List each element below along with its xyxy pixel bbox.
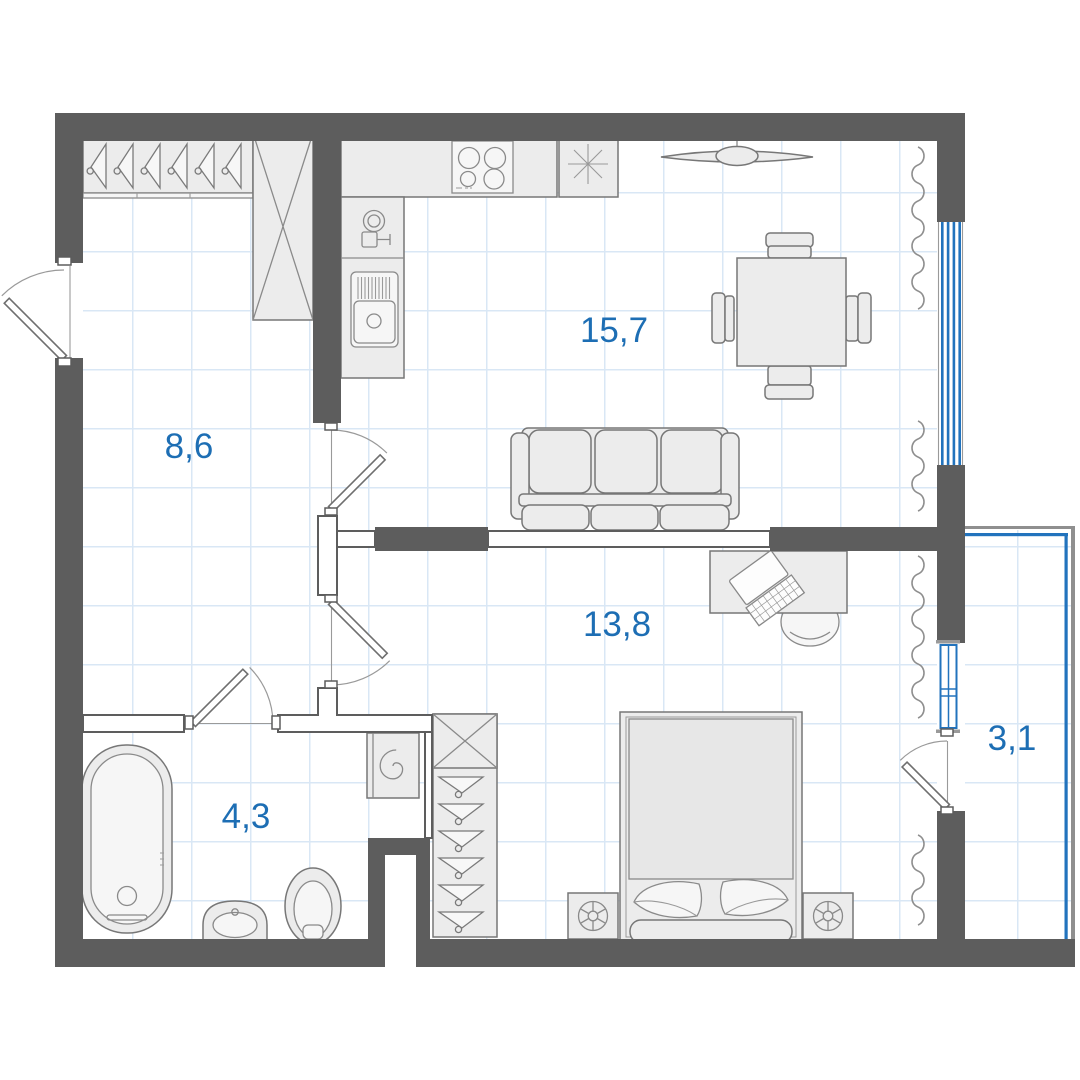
divider-thin-a — [337, 531, 375, 547]
bedroom-window — [936, 640, 960, 733]
bathroom-partition-vert — [425, 732, 432, 838]
wall-kitchen-stub — [313, 141, 341, 423]
wall-divider-right — [770, 527, 937, 551]
fridge-icon — [559, 133, 618, 197]
bathroom-partition-left — [83, 715, 184, 732]
nightstand-right — [803, 893, 853, 939]
washbasin — [203, 901, 267, 940]
wall-right-1 — [937, 113, 965, 222]
hanger-rail — [83, 134, 253, 198]
kitchen-counter — [341, 133, 557, 197]
washing-machine-icon — [367, 733, 419, 798]
bed — [620, 712, 802, 943]
room-label-bedroom: 13,8 — [583, 605, 651, 644]
dining-chair-left — [712, 293, 734, 343]
blanket — [629, 719, 793, 879]
dining-table — [737, 258, 846, 366]
duct-shaft-slot — [385, 855, 416, 967]
living-room-window — [937, 222, 965, 465]
dining-chair-right — [846, 293, 871, 343]
nightstand-left — [568, 893, 618, 939]
wall-top — [55, 113, 965, 141]
room-label-bathroom: 4,3 — [222, 797, 271, 836]
wardrobe-hallway — [253, 133, 313, 320]
dining-chair-bottom — [765, 366, 813, 399]
toilet — [285, 868, 341, 944]
wardrobe-bedroom — [433, 714, 497, 937]
divider-thin-b — [488, 531, 770, 547]
bathtub — [82, 745, 172, 933]
room-label-hallway: 8,6 — [165, 427, 214, 466]
wall-bottom — [55, 939, 1075, 967]
wall-right-3 — [937, 811, 965, 939]
room-label-kitchen-living: 15,7 — [580, 311, 648, 350]
room-label-balcony: 3,1 — [988, 719, 1037, 758]
wall-left-lower — [55, 358, 83, 939]
wall-right-2 — [937, 465, 965, 643]
hob-icon — [452, 141, 513, 193]
dining-chair-top — [766, 233, 813, 258]
floor-plan: 8,6 15,7 13,8 4,3 3,1 — [0, 0, 1080, 1080]
wall-divider-left — [375, 527, 488, 551]
kitchen-side-counter — [341, 197, 404, 378]
partition-pillar — [318, 516, 337, 595]
sofa — [511, 428, 739, 530]
wall-left-upper — [55, 113, 83, 263]
kitchen-sink-icon — [351, 272, 398, 347]
